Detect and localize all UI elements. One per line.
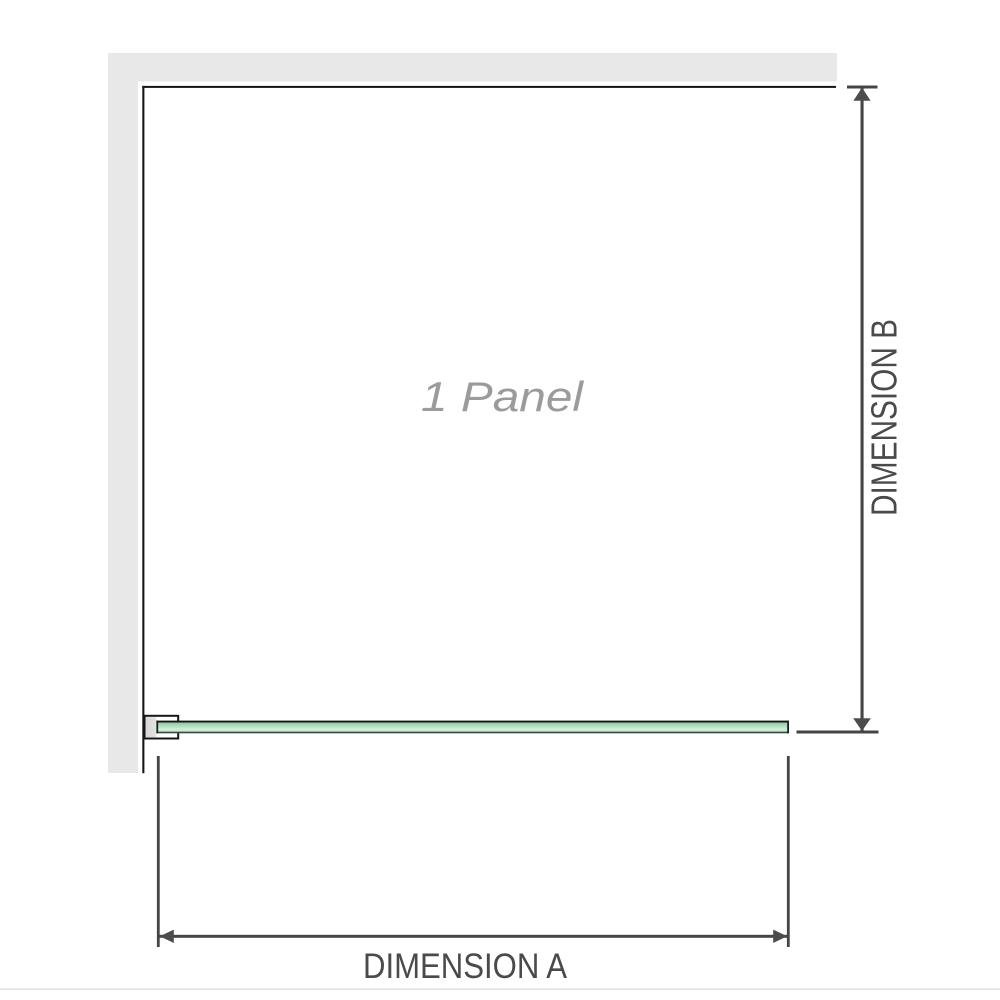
svg-text:DIMENSION B: DIMENSION B bbox=[863, 319, 904, 516]
svg-text:DIMENSION A: DIMENSION A bbox=[363, 947, 568, 986]
svg-text:1 Panel: 1 Panel bbox=[421, 373, 585, 420]
